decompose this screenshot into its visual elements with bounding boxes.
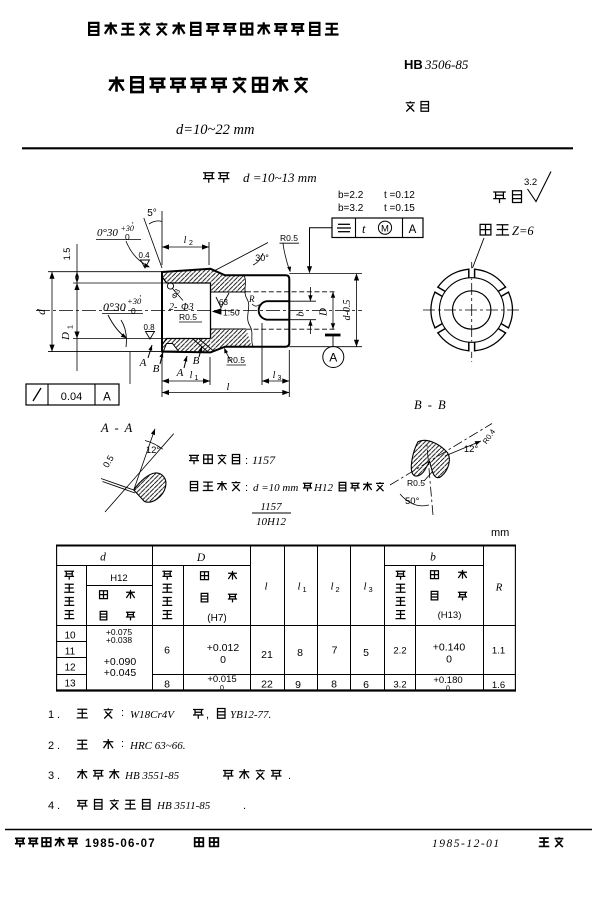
svg-text:.: . bbox=[57, 740, 60, 752]
svg-text:H12: H12 bbox=[110, 573, 127, 584]
svg-text:5: 5 bbox=[363, 647, 369, 659]
svg-text:0: 0 bbox=[220, 685, 224, 692]
svg-text:8: 8 bbox=[331, 679, 337, 691]
svg-text:l: l bbox=[184, 235, 187, 246]
svg-text:1.5: 1.5 bbox=[62, 248, 72, 261]
svg-text:H12: H12 bbox=[313, 482, 333, 494]
svg-text:.: . bbox=[57, 770, 60, 782]
svg-text:l: l bbox=[273, 370, 276, 381]
svg-text:3.2: 3.2 bbox=[393, 680, 406, 691]
svg-text:0°30: 0°30 bbox=[97, 227, 118, 239]
svg-text:9: 9 bbox=[295, 679, 301, 691]
svg-text:W18Cr4V: W18Cr4V bbox=[130, 709, 175, 721]
svg-text:1: 1 bbox=[48, 709, 54, 721]
svg-text:3.2: 3.2 bbox=[524, 177, 537, 188]
svg-text:l: l bbox=[330, 581, 333, 593]
svg-text:A: A bbox=[176, 367, 184, 379]
svg-text:HRC 63~66.: HRC 63~66. bbox=[129, 740, 185, 752]
svg-text:12°: 12° bbox=[464, 444, 479, 455]
svg-text:t: t bbox=[362, 222, 366, 236]
svg-text:YB12-77.: YB12-77. bbox=[230, 709, 271, 721]
svg-text:1:50: 1:50 bbox=[223, 308, 240, 318]
svg-text:M: M bbox=[381, 223, 389, 234]
svg-text:0.04: 0.04 bbox=[61, 391, 82, 403]
svg-text:HB 3511-85: HB 3511-85 bbox=[156, 800, 211, 812]
svg-text:l: l bbox=[363, 581, 366, 593]
svg-text:R0.5: R0.5 bbox=[407, 478, 425, 488]
svg-text:b=2.2: b=2.2 bbox=[338, 190, 364, 201]
svg-text:B: B bbox=[153, 363, 160, 375]
svg-text:0: 0 bbox=[220, 654, 226, 666]
svg-text:Z=6: Z=6 bbox=[512, 224, 534, 238]
svg-text:d =10~13 mm: d =10~13 mm bbox=[243, 170, 317, 185]
svg-text:,: , bbox=[206, 709, 209, 721]
svg-text:A: A bbox=[409, 224, 417, 236]
svg-text:D: D bbox=[318, 308, 330, 317]
svg-text:+0.045: +0.045 bbox=[104, 667, 137, 679]
svg-text:A: A bbox=[139, 357, 147, 369]
svg-text:.: . bbox=[57, 800, 60, 812]
svg-text:R: R bbox=[248, 294, 255, 304]
svg-text:0: 0 bbox=[446, 654, 452, 666]
svg-text:3: 3 bbox=[369, 585, 373, 594]
svg-text:.: . bbox=[288, 770, 291, 782]
svg-text:1: 1 bbox=[66, 325, 75, 329]
svg-text:A: A bbox=[103, 392, 111, 404]
svg-text:2-: 2- bbox=[169, 302, 177, 313]
svg-text:1: 1 bbox=[195, 375, 199, 382]
svg-text:l: l bbox=[227, 382, 230, 393]
svg-text:d: d bbox=[100, 552, 106, 564]
svg-text:22: 22 bbox=[261, 679, 273, 691]
svg-text:1985-06-07: 1985-06-07 bbox=[85, 838, 156, 850]
svg-text:R0.5: R0.5 bbox=[280, 233, 298, 243]
svg-text:8: 8 bbox=[297, 647, 303, 659]
svg-text:2.2: 2.2 bbox=[393, 646, 406, 657]
svg-text::: : bbox=[245, 455, 248, 467]
svg-text:HB 3551-85: HB 3551-85 bbox=[124, 770, 180, 782]
svg-text:D: D bbox=[196, 552, 206, 564]
svg-text:0: 0 bbox=[446, 686, 450, 693]
svg-text:l: l bbox=[264, 581, 267, 593]
svg-text:7: 7 bbox=[332, 645, 338, 657]
svg-text:0.8: 0.8 bbox=[144, 323, 156, 332]
svg-text:1.1: 1.1 bbox=[492, 646, 505, 657]
svg-text:R: R bbox=[495, 582, 503, 594]
svg-text:D: D bbox=[60, 332, 72, 341]
svg-text:11: 11 bbox=[65, 647, 76, 658]
svg-text:d-0.5: d-0.5 bbox=[342, 300, 353, 321]
svg-text:t =0.15: t =0.15 bbox=[384, 203, 415, 214]
svg-text:(H13): (H13) bbox=[438, 610, 462, 621]
svg-text::: : bbox=[245, 482, 248, 494]
svg-text:13: 13 bbox=[64, 679, 76, 690]
svg-text:b: b bbox=[296, 311, 307, 316]
svg-text:0.4: 0.4 bbox=[139, 251, 151, 260]
svg-text:.: . bbox=[57, 709, 60, 721]
svg-text:2: 2 bbox=[48, 740, 54, 752]
svg-text:4: 4 bbox=[48, 800, 54, 812]
svg-text:1985-12-01: 1985-12-01 bbox=[432, 838, 501, 850]
svg-text:.: . bbox=[243, 800, 246, 812]
svg-text:0: 0 bbox=[125, 232, 130, 242]
svg-text:d =10 mm: d =10 mm bbox=[253, 482, 298, 494]
svg-text:12°: 12° bbox=[146, 445, 161, 456]
svg-text:6: 6 bbox=[164, 645, 170, 657]
svg-text:1157: 1157 bbox=[260, 501, 282, 513]
svg-text:A - A: A - A bbox=[100, 421, 134, 435]
svg-text::: : bbox=[121, 738, 124, 750]
svg-text:d: d bbox=[36, 309, 48, 315]
svg-text:21: 21 bbox=[261, 649, 273, 661]
svg-text:t =0.12: t =0.12 bbox=[384, 190, 415, 201]
svg-text:10H12: 10H12 bbox=[256, 516, 286, 528]
svg-text:0: 0 bbox=[131, 306, 136, 316]
svg-text:b: b bbox=[430, 552, 436, 564]
svg-text:2: 2 bbox=[189, 240, 193, 247]
svg-text::: : bbox=[121, 707, 124, 719]
svg-text:+0.012: +0.012 bbox=[207, 642, 240, 654]
svg-text:l: l bbox=[297, 581, 300, 593]
svg-text:6: 6 bbox=[363, 679, 369, 691]
svg-text:R0.5: R0.5 bbox=[179, 312, 197, 322]
svg-text:+0.015: +0.015 bbox=[207, 674, 236, 685]
svg-text:8: 8 bbox=[164, 679, 170, 691]
svg-text:b=3.2: b=3.2 bbox=[338, 203, 364, 214]
svg-text:2: 2 bbox=[336, 585, 340, 594]
svg-text:B - B: B - B bbox=[414, 398, 447, 412]
svg-text:d=10~22 mm: d=10~22 mm bbox=[176, 122, 254, 138]
svg-text:A: A bbox=[329, 351, 337, 365]
svg-text:3506-85: 3506-85 bbox=[424, 57, 469, 72]
svg-text:l: l bbox=[190, 370, 193, 381]
svg-text:1.6: 1.6 bbox=[492, 680, 505, 691]
svg-text:mm: mm bbox=[491, 527, 509, 539]
svg-text:HB: HB bbox=[404, 57, 423, 72]
svg-text:+0.038: +0.038 bbox=[106, 635, 133, 645]
svg-text:1: 1 bbox=[303, 585, 307, 594]
svg-text:1157: 1157 bbox=[252, 453, 276, 467]
svg-text:+0.180: +0.180 bbox=[433, 675, 462, 686]
svg-text:5°: 5° bbox=[147, 208, 157, 219]
svg-text:(H7): (H7) bbox=[207, 613, 226, 624]
svg-text:12: 12 bbox=[64, 663, 76, 674]
svg-text:10: 10 bbox=[64, 631, 76, 642]
svg-text:R0.5: R0.5 bbox=[227, 355, 245, 365]
svg-text:3: 3 bbox=[48, 770, 54, 782]
svg-text:+0.140: +0.140 bbox=[433, 642, 466, 654]
svg-text:0°30: 0°30 bbox=[103, 300, 126, 314]
svg-text:3: 3 bbox=[278, 375, 282, 382]
